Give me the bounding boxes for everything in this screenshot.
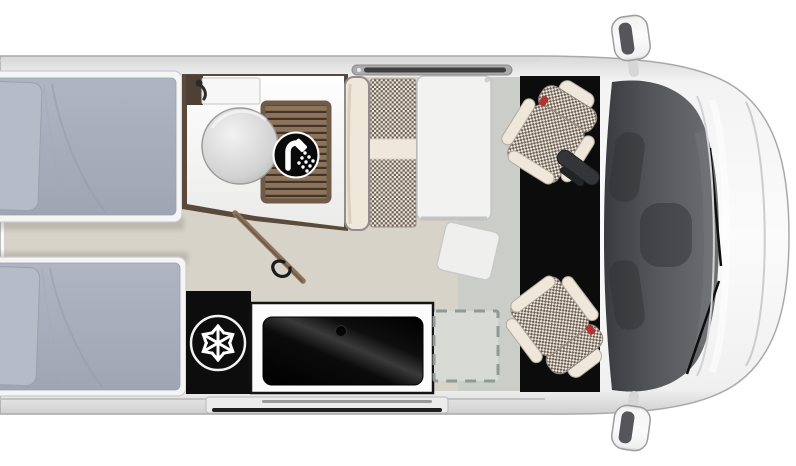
camper-floorplan [0,0,796,466]
shower-icon [274,133,319,178]
pillow [0,81,42,211]
shower-tray-round [202,108,278,184]
kitchen-block [251,303,433,393]
bathroom-corner-cabinet [186,75,203,105]
cooktop-knob [336,326,347,337]
cabinet-panel-shade [349,84,351,224]
optional-equipment-zone [434,311,498,381]
rear-bed-lower [0,252,188,396]
washbasin-cabinet [202,78,260,104]
rear-bed-upper [0,71,184,230]
fridge [186,291,251,394]
travel-bench-seat [370,79,416,227]
entry-step-bottom [206,397,448,413]
sliding-door-rail-top [352,65,512,75]
dashboard-shape [640,203,692,267]
pillow [0,266,40,386]
floorplan-canvas [0,0,796,466]
bench-cream-band [370,139,416,159]
table-latch [485,78,490,83]
